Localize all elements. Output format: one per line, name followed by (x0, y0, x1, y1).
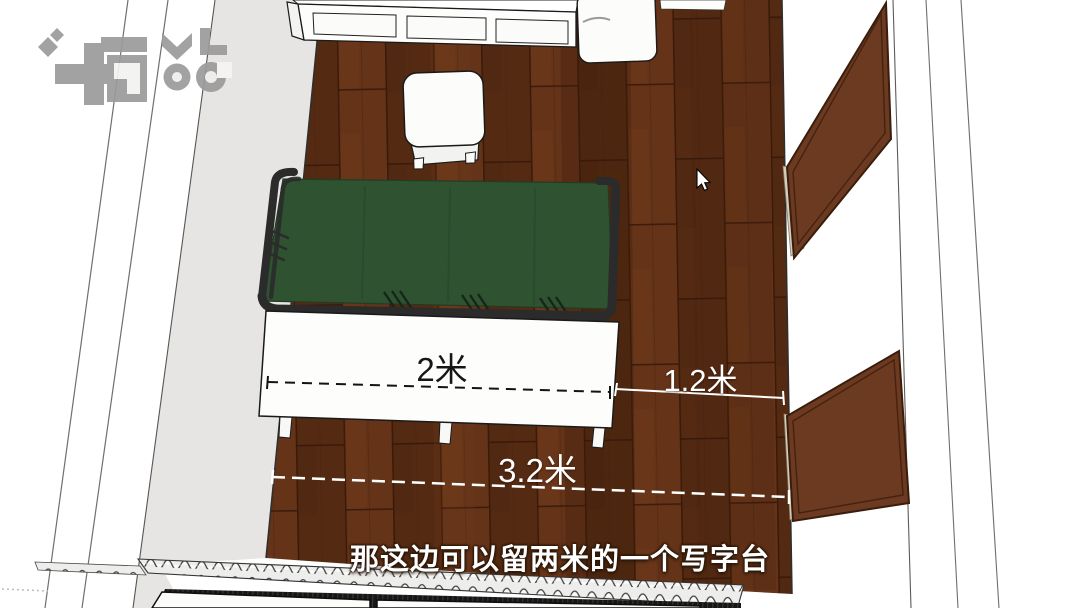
logo-square-glyph-icon (101, 37, 147, 102)
logo-chevron-icon (162, 33, 192, 60)
stool[interactable] (403, 71, 486, 170)
guide-dotted-line (2, 589, 48, 591)
wall-shelf-unit[interactable] (287, 0, 578, 47)
room-3d-viewport[interactable]: 2米 1.2米 3.2米 那这边可以留两米的一个写字台 (0, 0, 1080, 608)
white-sliver (660, 0, 726, 10)
right-wall (893, 0, 999, 608)
bed-leg (439, 421, 452, 444)
door-panel-lower[interactable] (784, 351, 909, 521)
green-sofa-bed[interactable] (262, 172, 616, 316)
white-cabinet-box[interactable] (577, 0, 657, 63)
logo-diamond-small-icon (50, 28, 64, 42)
scene-canvas[interactable] (0, 0, 1080, 608)
sofa-cushion (263, 179, 613, 309)
bed-leg (279, 416, 292, 438)
bed-leg (592, 427, 605, 448)
door-panel-upper[interactable] (783, 3, 891, 258)
logo-ring-icon (164, 64, 191, 91)
